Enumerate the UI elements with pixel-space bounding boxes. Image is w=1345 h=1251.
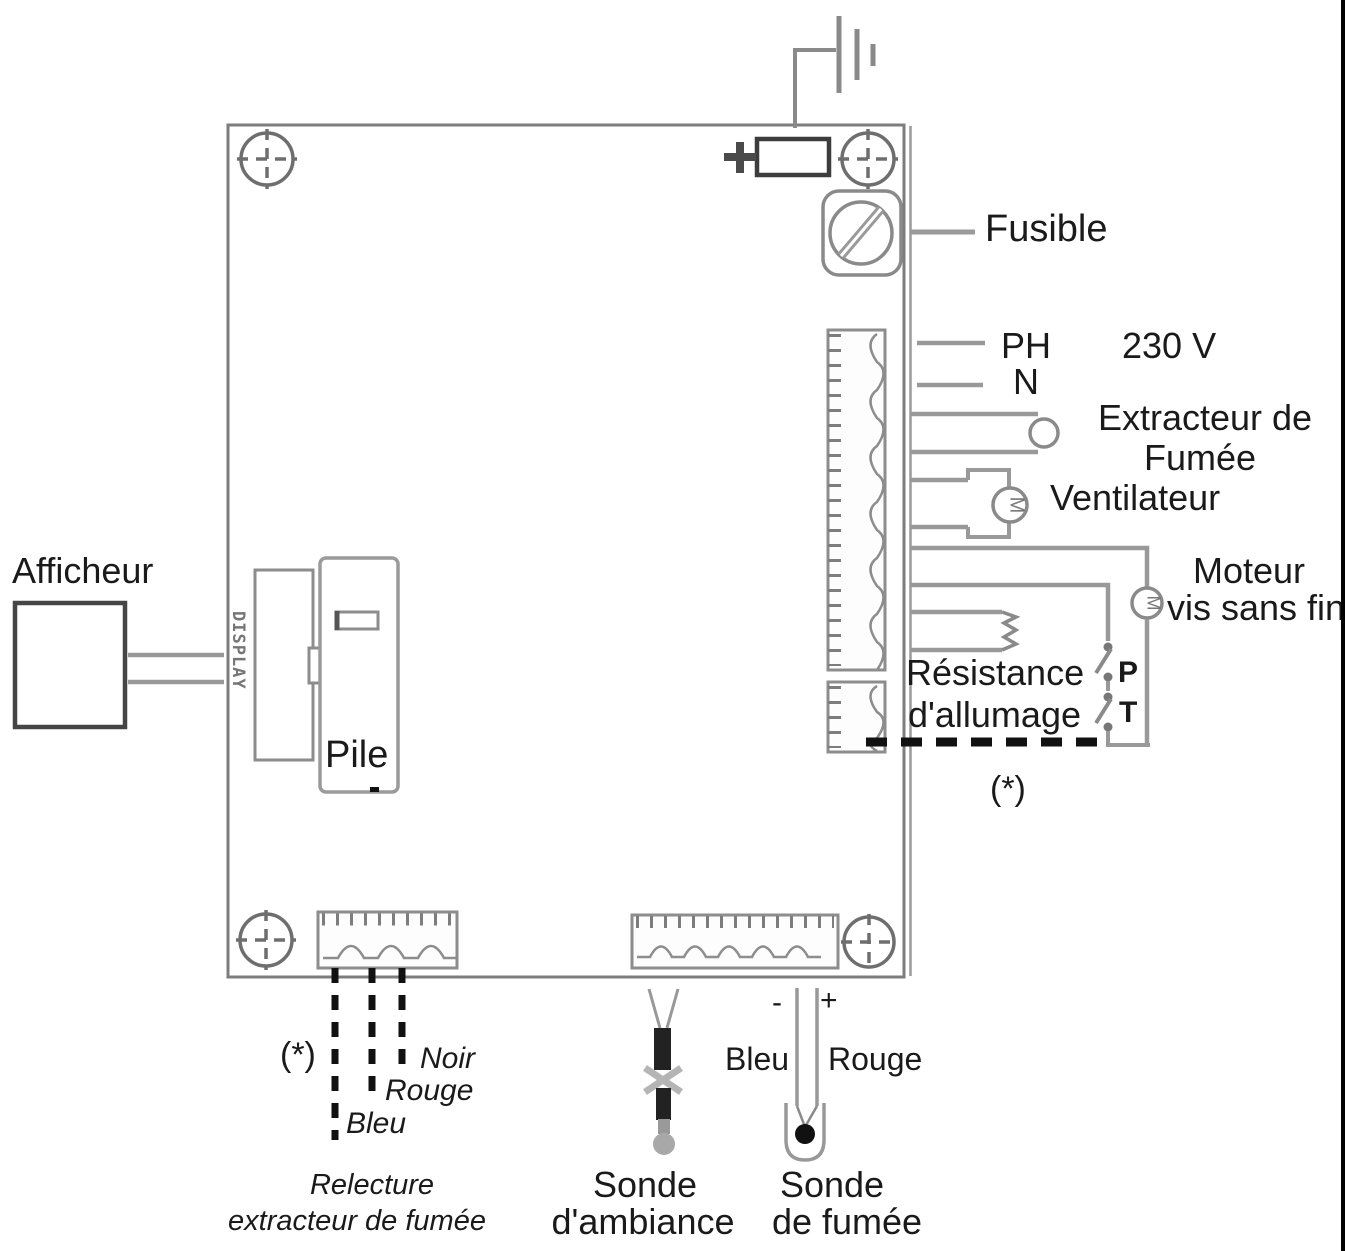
auger-motor-label-line1: Moteur xyxy=(1193,553,1305,589)
diagram-graphics: M M xyxy=(0,0,1345,1251)
switch-p-label: P xyxy=(1118,658,1138,688)
display-connector xyxy=(255,570,323,760)
room-probe-icon xyxy=(645,989,681,1155)
igniter-label-line2: d'allumage xyxy=(908,697,1081,733)
voltage-label: 230 V xyxy=(1122,328,1216,364)
display-unit-label: Afficheur xyxy=(12,553,153,589)
wiring-diagram: M M xyxy=(0,0,1345,1251)
wire-red-label: Rouge xyxy=(385,1076,473,1106)
readback-label-line2: extracteur de fumée xyxy=(228,1207,486,1236)
igniter-label-line1: Résistance xyxy=(906,655,1084,691)
smoke-probe-label-line1: Sonde xyxy=(780,1167,884,1203)
main-terminal-block xyxy=(828,330,885,670)
battery-label: Pile xyxy=(325,736,388,774)
room-probe-label-line2: d'ambiance xyxy=(552,1204,735,1240)
room-probe-label-line1: Sonde xyxy=(593,1167,697,1203)
phase-label: PH xyxy=(1001,328,1051,364)
readback-label-line1: Relecture xyxy=(310,1171,434,1200)
smoke-probe-icon xyxy=(786,988,824,1160)
smoke-probe-label-line2: de fumée xyxy=(772,1204,922,1240)
display-unit-box xyxy=(15,603,224,727)
polarity-plus-label: + xyxy=(820,986,838,1016)
auger-motor-letter: M xyxy=(1143,596,1163,611)
circuit-board-outline xyxy=(228,125,911,977)
fuse-icon xyxy=(823,191,975,275)
fan-label: Ventilateur xyxy=(1050,480,1220,516)
mains-wires xyxy=(917,343,985,385)
auger-motor-label-line2: vis sans fin xyxy=(1167,590,1345,626)
switch-t-label: T xyxy=(1119,698,1137,728)
fuse-label: Fusible xyxy=(985,210,1108,248)
smoke-extractor-label-line1: Extracteur de xyxy=(1098,400,1312,436)
fan-motor-letter: M xyxy=(1006,497,1028,514)
note-marker-left: (*) xyxy=(280,1038,316,1072)
page-edge xyxy=(1341,0,1345,1251)
protection-component-icon xyxy=(724,139,829,175)
neutral-label: N xyxy=(1013,364,1039,400)
wire-blue-label: Bleu xyxy=(346,1109,406,1139)
readback-connector xyxy=(318,912,458,968)
polarity-minus-label: - xyxy=(772,988,782,1018)
probe-connector xyxy=(632,915,838,968)
smoke-extractor-symbol xyxy=(910,414,1058,452)
fan-symbol: M xyxy=(910,470,1028,537)
note-marker-right: (*) xyxy=(990,772,1026,806)
ground-icon xyxy=(795,16,873,128)
display-connector-label: DISPLAY xyxy=(229,611,246,729)
switch-p-icon xyxy=(1096,643,1113,692)
switch-t-icon xyxy=(1096,693,1113,732)
igniter-resistor-symbol xyxy=(910,612,1016,650)
smoke-probe-red-label: Rouge xyxy=(828,1043,922,1075)
smoke-probe-blue-label: Bleu xyxy=(725,1043,789,1075)
wire-black-label: Noir xyxy=(420,1044,475,1074)
smoke-extractor-label-line2: Fumée xyxy=(1144,440,1256,476)
